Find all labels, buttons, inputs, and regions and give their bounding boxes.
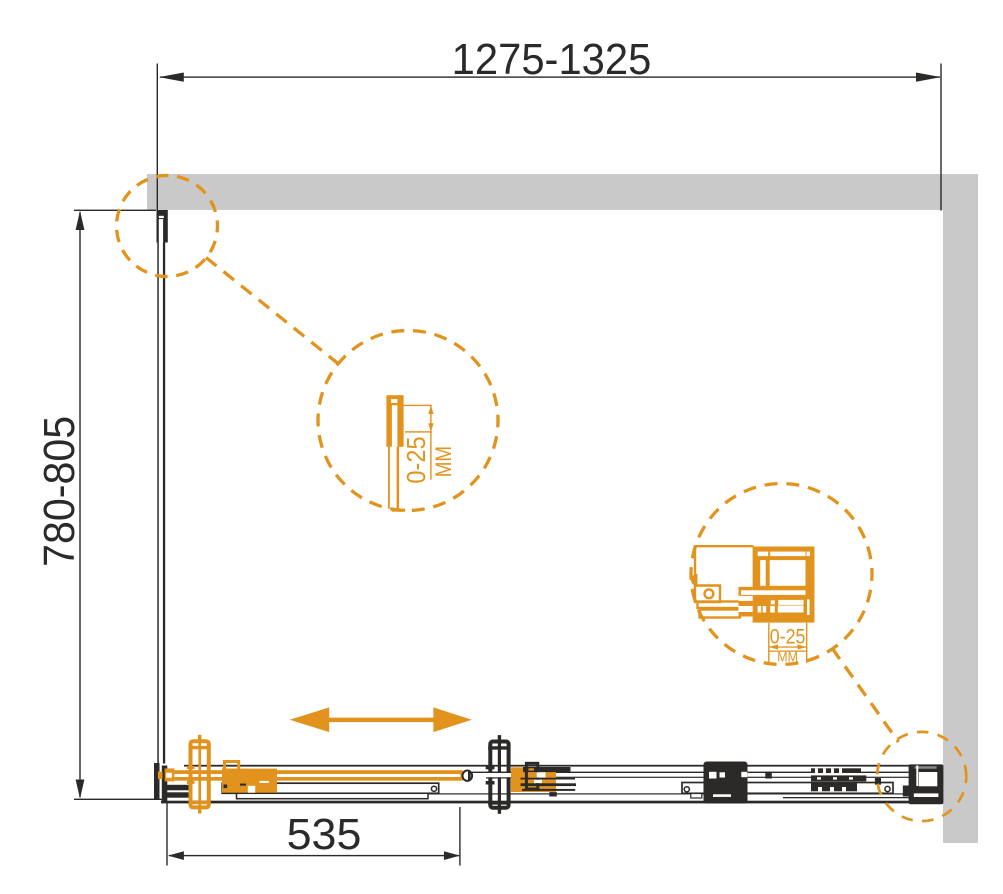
svg-text:1275-1325: 1275-1325 [452,35,652,84]
svg-text:780-805: 780-805 [35,416,83,567]
svg-text:ММ: ММ [433,446,457,477]
svg-text:535: 535 [287,811,362,859]
svg-text:0-25: 0-25 [770,625,806,649]
svg-text:0-25: 0-25 [402,436,431,483]
